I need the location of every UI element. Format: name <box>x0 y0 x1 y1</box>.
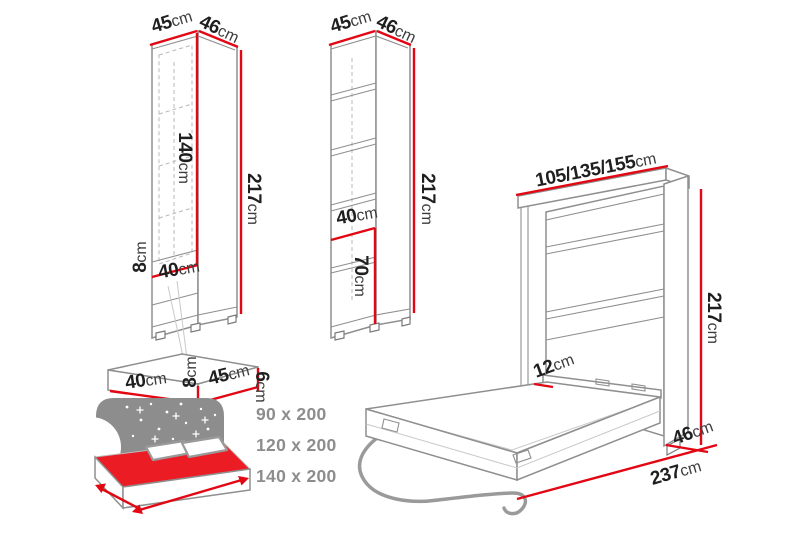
mattress-size-list: 90 x 200 120 x 200 140 x 200 <box>256 399 337 492</box>
cabinet-left-drawing <box>150 31 241 340</box>
dim-cabinet-left-height: 217cm <box>242 173 264 225</box>
cabinet-middle-side-face <box>376 31 410 325</box>
dim-wallbed-height: 217cm <box>702 292 724 344</box>
dim-cabinet-middle-height: 217cm <box>416 173 438 225</box>
mattress-size-option: 120 x 200 <box>256 430 337 461</box>
diagram-canvas <box>0 0 800 533</box>
cabinet-middle-foot <box>335 331 344 340</box>
bed-pictogram <box>61 398 250 514</box>
dim-cabinet-left-niche-height: 8cm <box>130 241 152 273</box>
cabinet-left-foot <box>228 315 236 324</box>
mattress-size-option: 140 x 200 <box>256 461 337 492</box>
wallbed-right-side-panel <box>664 176 688 446</box>
cabinet-left-side-face <box>198 31 237 325</box>
wallbed-left-frame-edge <box>521 206 528 394</box>
mattress-size-option: 90 x 200 <box>256 399 337 430</box>
cabinet-middle-foot <box>402 317 410 326</box>
cabinet-left-foot <box>156 331 165 340</box>
furniture-dimension-diagram: 45cm 46cm 140cm 217cm 8cm 40cm 45cm 46cm… <box>0 0 800 533</box>
dim-cabinet-middle-niche-height: 70cm <box>349 255 371 297</box>
cabinet-middle-drawing <box>329 31 414 340</box>
cabinet-left-foot <box>191 323 200 332</box>
dim-shelf-height: 8cm <box>180 356 202 388</box>
cabinet-middle-foot <box>370 323 379 332</box>
dim-cabinet-left-inner-height: 140cm <box>173 132 195 184</box>
